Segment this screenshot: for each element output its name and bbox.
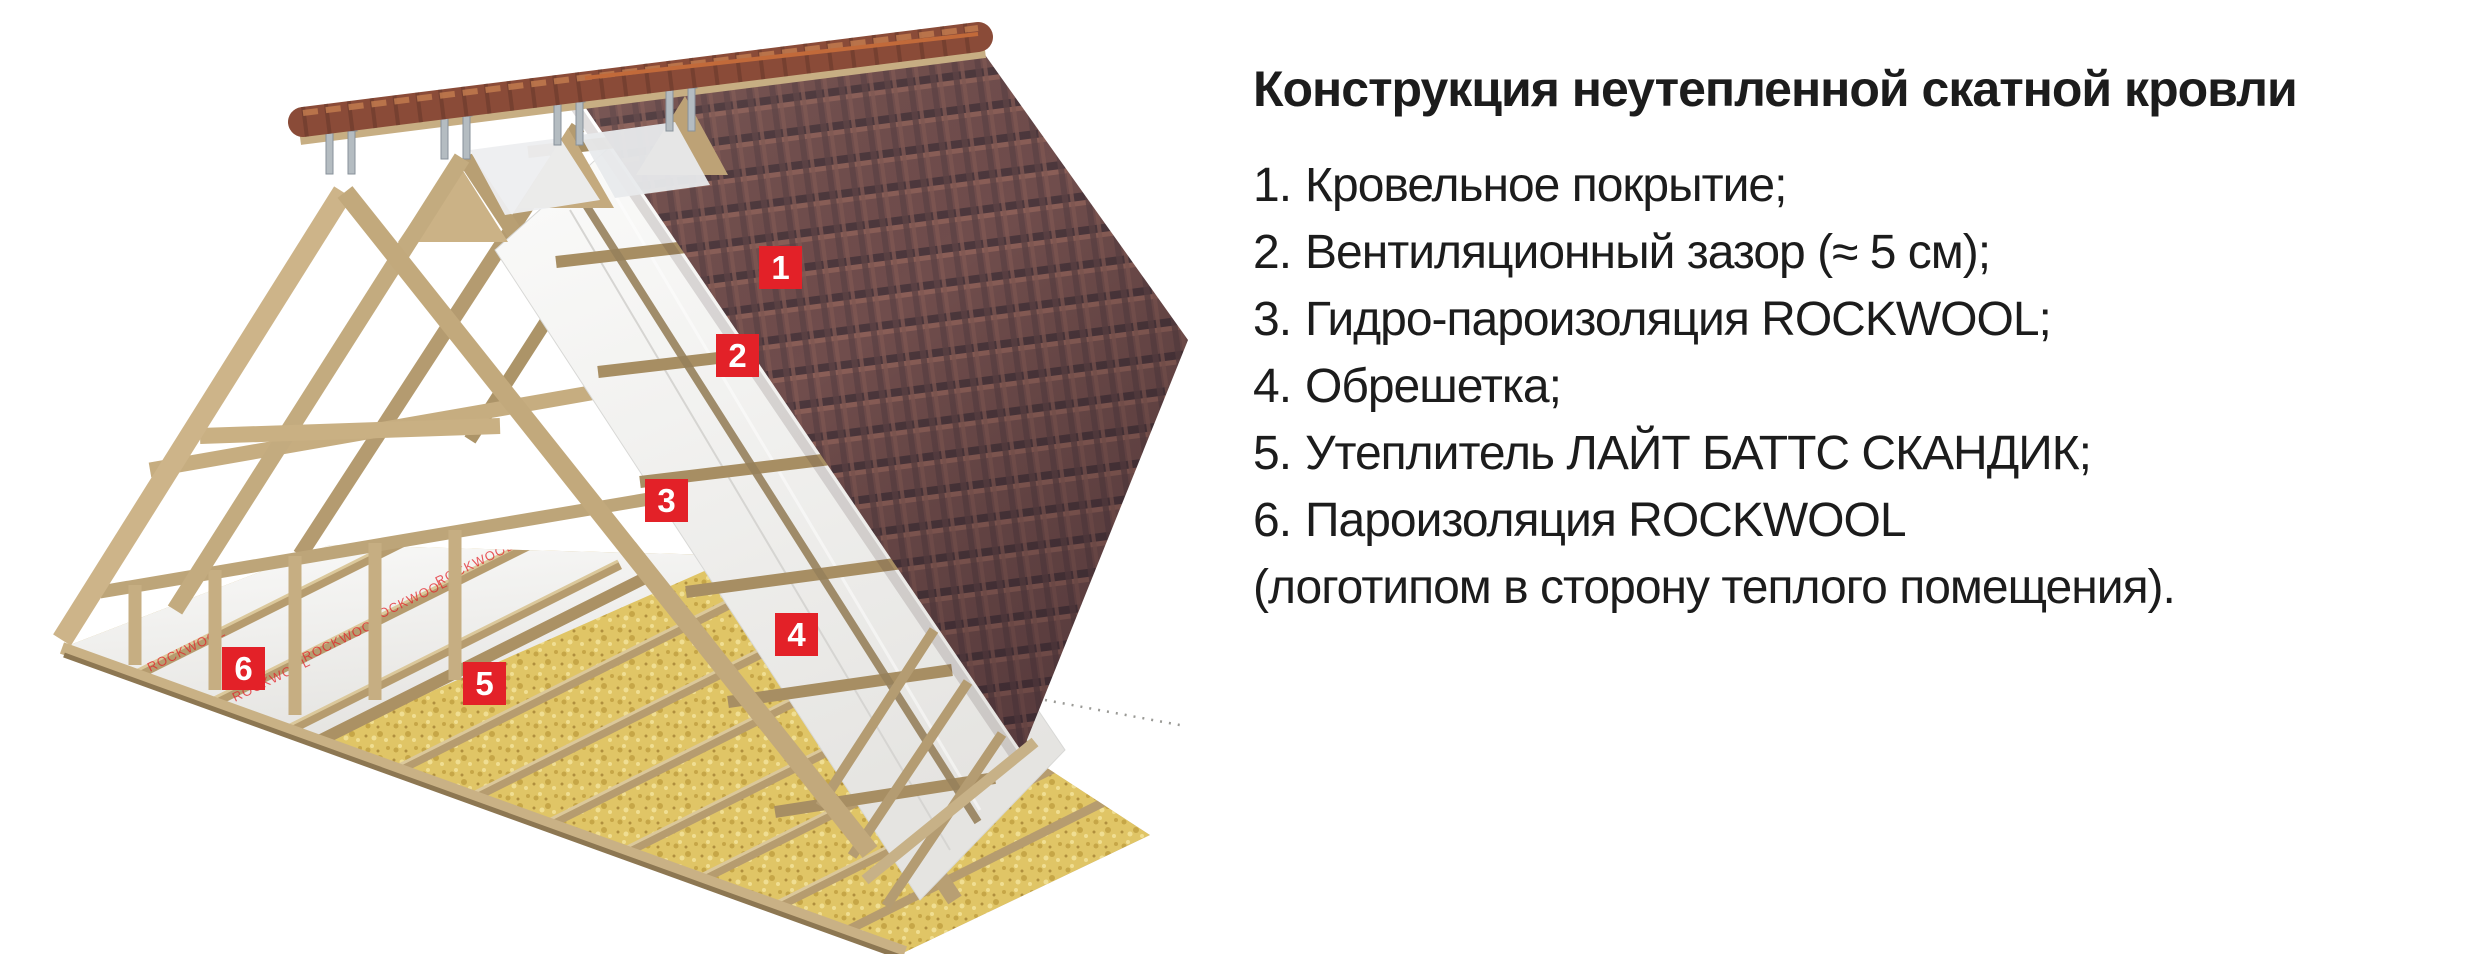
legend-list: 1.Кровельное покрытие; 2.Вентиляционный … [1253, 152, 2443, 621]
marker-4-battens: 4 [775, 613, 818, 656]
legend-item-5: 5.Утеплитель ЛАЙТ БАТТС СКАНДИК; [1253, 420, 2443, 487]
marker-3-hydro-membrane: 3 [645, 479, 688, 522]
legend-item-text: Кровельное покрытие; [1305, 159, 1786, 212]
legend-item-number: 3. [1253, 286, 1291, 353]
legend-item-1: 1.Кровельное покрытие; [1253, 152, 2443, 219]
legend-item-text: Утеплитель ЛАЙТ БАТТС СКАНДИК; [1305, 427, 2091, 480]
page-title: Конструкция неутепленной скатной кровли [1253, 60, 2443, 118]
legend-item-text: Гидро-пароизоляция ROCKWOOL; [1305, 293, 2051, 346]
marker-5-insulation: 5 [463, 662, 506, 705]
legend-footnote: (логотипом в сторону теплого помещения). [1253, 554, 2443, 621]
legend-item-6: 6.Пароизоляция ROCKWOOL [1253, 487, 2443, 554]
marker-number: 2 [728, 339, 746, 372]
marker-number: 5 [475, 667, 493, 700]
legend-item-4: 4.Обрешетка; [1253, 353, 2443, 420]
roof-cutaway-illustration: ROCKWOOL ROCKWOOL ROCKWOOL ROCKWOOL ROCK… [0, 0, 1240, 954]
legend-item-number: 6. [1253, 487, 1291, 554]
infographic-page: ROCKWOOL ROCKWOOL ROCKWOOL ROCKWOOL ROCK… [0, 0, 2480, 954]
marker-number: 1 [771, 251, 789, 284]
legend-item-number: 1. [1253, 152, 1291, 219]
legend-item-number: 5. [1253, 420, 1291, 487]
legend-item-number: 2. [1253, 219, 1291, 286]
marker-2-ventilation-gap: 2 [716, 334, 759, 377]
ground-guide-line [1045, 700, 1185, 726]
marker-1-roof-covering: 1 [759, 246, 802, 289]
roof-cutaway-drawing: ROCKWOOL ROCKWOOL ROCKWOOL ROCKWOOL ROCK… [0, 0, 1240, 954]
marker-number: 6 [234, 652, 252, 685]
legend-item-number: 4. [1253, 353, 1291, 420]
legend-item-text: Пароизоляция ROCKWOOL [1305, 494, 1906, 547]
legend-item-text: Обрешетка; [1305, 360, 1561, 413]
legend-item-3: 3.Гидро-пароизоляция ROCKWOOL; [1253, 286, 2443, 353]
legend-item-2: 2.Вентиляционный зазор (≈ 5 см); [1253, 219, 2443, 286]
marker-number: 3 [657, 484, 675, 517]
legend-item-text: Вентиляционный зазор (≈ 5 см); [1305, 226, 1990, 279]
marker-6-vapor-barrier: 6 [222, 647, 265, 690]
legend-panel: Конструкция неутепленной скатной кровли … [1253, 60, 2443, 621]
marker-number: 4 [787, 618, 805, 651]
